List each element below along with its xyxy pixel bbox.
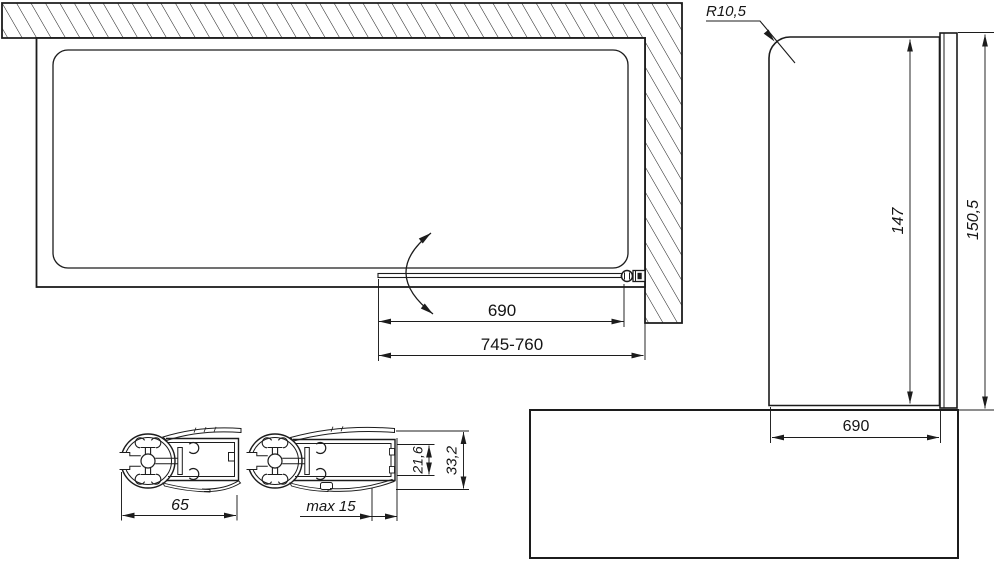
- dim-label-147: 147: [890, 207, 907, 235]
- dim-label-max-15: max 15: [306, 498, 356, 515]
- glass-screen-top-view: [378, 274, 622, 278]
- dim-label-front-690: 690: [843, 418, 870, 435]
- dim-label-top-690: 690: [488, 301, 516, 320]
- dim-label-21-6: 21,6: [410, 446, 426, 474]
- dim-total-height: 150,5: [965, 35, 985, 409]
- hinge-pivot: [622, 271, 633, 282]
- bath-screen-drawing: 690 745-760 R10,5 147: [0, 0, 1000, 562]
- bathtub-outer-rim: [37, 38, 646, 287]
- dim-label-33-2: 33,2: [444, 445, 461, 475]
- glass-panel-front: [769, 37, 940, 406]
- dim-label-150-5: 150,5: [965, 200, 982, 240]
- dim-profile-total-height: 33,2: [396, 431, 469, 490]
- profile-b: max 15 21,6 33,2: [247, 426, 470, 521]
- dim-channel-inner-height: 21,6: [397, 445, 435, 476]
- dim-label-65: 65: [171, 497, 189, 514]
- dim-label-745-760: 745-760: [481, 335, 543, 354]
- bathtub-front: [530, 410, 958, 558]
- dim-top-total-width: 745-760: [379, 323, 645, 360]
- dim-profile-width: 65: [122, 472, 238, 521]
- technical-drawing-page: 690 745-760 R10,5 147: [0, 0, 1000, 562]
- dim-adjustment-range: max 15: [300, 438, 397, 521]
- profile-cross-sections: 65 max 15: [120, 426, 470, 521]
- hinge-assembly: [621, 271, 646, 282]
- wall-profile-strip: [940, 33, 957, 408]
- profile-a: 65: [120, 427, 242, 521]
- top-view: 690 745-760: [37, 38, 646, 361]
- dim-label-radius: R10,5: [706, 3, 747, 20]
